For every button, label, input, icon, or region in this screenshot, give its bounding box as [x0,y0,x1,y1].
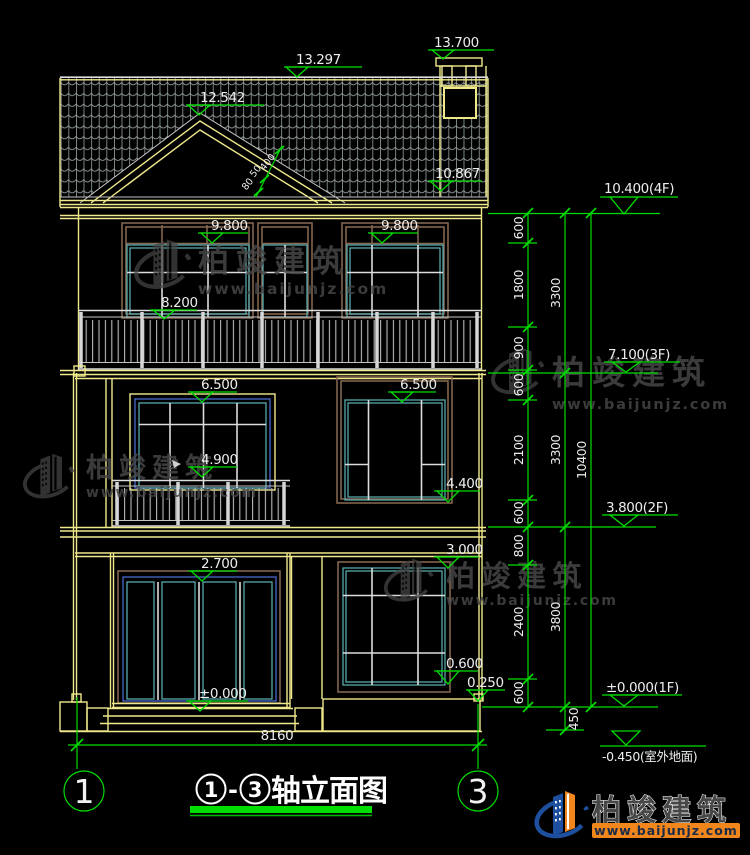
svg-text:7.100(3F): 7.100(3F) [608,347,670,363]
title-dash: - [228,776,238,804]
level-label: 6.500 [400,377,437,393]
title-block: 1 - 3 轴立面图 [190,774,387,816]
story-level-1f: ±0.000(1F) [602,680,682,706]
watermark-url: www.baijunjz.com [198,280,388,298]
dim-seg: 600 [511,216,526,239]
svg-text:3: 3 [468,772,489,811]
level-label: 4.900 [201,452,238,468]
level-f3-rail: 8.200 [150,295,198,319]
f3-window-right [342,223,448,318]
dim-seg: 3300 [548,434,563,465]
level-ridge: 13.297 [284,52,362,77]
watermark-url: www.baijunjz.com [446,593,618,609]
roof: 80 50 400 [60,58,488,208]
svg-text:10.400(4F): 10.400(4F) [604,181,674,197]
f3-balcony-rail [78,311,482,370]
story-level-2f: 3.800(2F) [602,500,678,526]
brand-url-text: www.baijunjz.com [594,823,738,838]
level-f2-sill: 4.400 [434,476,483,502]
watermark-logo-icon [382,559,437,606]
level-label: 13.297 [296,52,341,68]
level-label: 13.700 [434,35,479,51]
dim-seg: 10400 [574,441,589,479]
dim-seg: 2400 [511,606,526,637]
level-f2-window-left: 6.500 [188,377,238,402]
svg-text:1: 1 [74,772,95,811]
dim-seg: 3300 [548,277,563,308]
dim-seg: 1800 [511,269,526,300]
axis-bubble-3: 3 [458,771,498,811]
level-label: 6.500 [201,377,238,393]
watermark-brand: 柏竣建筑 [86,452,218,484]
title-axis-1: 1 [204,778,219,802]
svg-text:±0.000(1F): ±0.000(1F) [606,680,679,696]
level-label: 10.867 [435,166,480,182]
total-width-dim: 8160 [261,728,294,744]
level-label: 0.600 [446,656,483,672]
page-title: 轴立面图 [271,774,387,809]
level-label: 3.000 [446,542,483,558]
level-plinth: 0.250 [466,675,505,701]
brand-logo-text: 柏竣建筑 [592,793,732,827]
dim-seg: 800 [511,534,526,557]
dim-seg: 600 [511,501,526,524]
brand-logo: 柏竣建筑 www.baijunjz.com [532,791,740,842]
brand-logo-icon [532,791,592,842]
watermark-brand: 柏竣建筑 [198,244,350,280]
level-label: 8.200 [161,295,198,311]
level-f3-window-right: 9.800 [368,218,418,243]
level-label: 2.700 [201,556,238,572]
dim-seg: 900 [511,336,526,359]
dimension-chain: 600 1800 900 600 2100 600 800 2400 600 3… [482,181,706,764]
dim-seg: 600 [511,681,526,704]
second-floor [60,373,486,700]
watermark-mid-right: 柏竣建筑 www.baijunjz.com [382,559,618,609]
svg-text:3.800(2F): 3.800(2F) [606,500,668,516]
dim-seg: 450 [566,707,581,730]
watermark-brand: 柏竣建筑 [446,559,588,593]
level-label: 9.800 [381,218,418,234]
level-label: 12.542 [200,90,245,106]
level-chimney-top: 13.700 [428,35,494,59]
axis-bubble-1: 1 [64,771,104,811]
svg-text:-0.450(室外地面): -0.450(室外地面) [602,749,697,764]
watermark-top-center: 柏竣建筑 www.baijunjz.com [131,239,388,298]
level-label: 0.250 [467,675,504,691]
watermark-url: www.baijunjz.com [86,485,258,501]
cad-canvas: 80 50 400 [0,0,750,855]
dim-seg: 3800 [548,601,563,632]
dim-seg: 2100 [511,434,526,465]
title-axis-3: 3 [248,778,263,802]
f1-window-right [338,562,450,692]
level-f3-window-left: 9.800 [198,218,248,243]
level-label: 9.800 [211,218,248,234]
title-underline-thick [190,806,372,813]
watermark-logo-icon [21,454,78,502]
dim-seg: 600 [511,373,526,396]
watermark-url: www.baijunjz.com [552,397,729,413]
story-level-4f: 10.400(4F) [600,181,678,214]
story-level-ground: -0.450(室外地面) [600,731,706,764]
elevation-drawing: 80 50 400 [0,0,750,855]
level-label: ±0.000 [199,686,247,702]
level-label: 4.400 [446,476,483,492]
